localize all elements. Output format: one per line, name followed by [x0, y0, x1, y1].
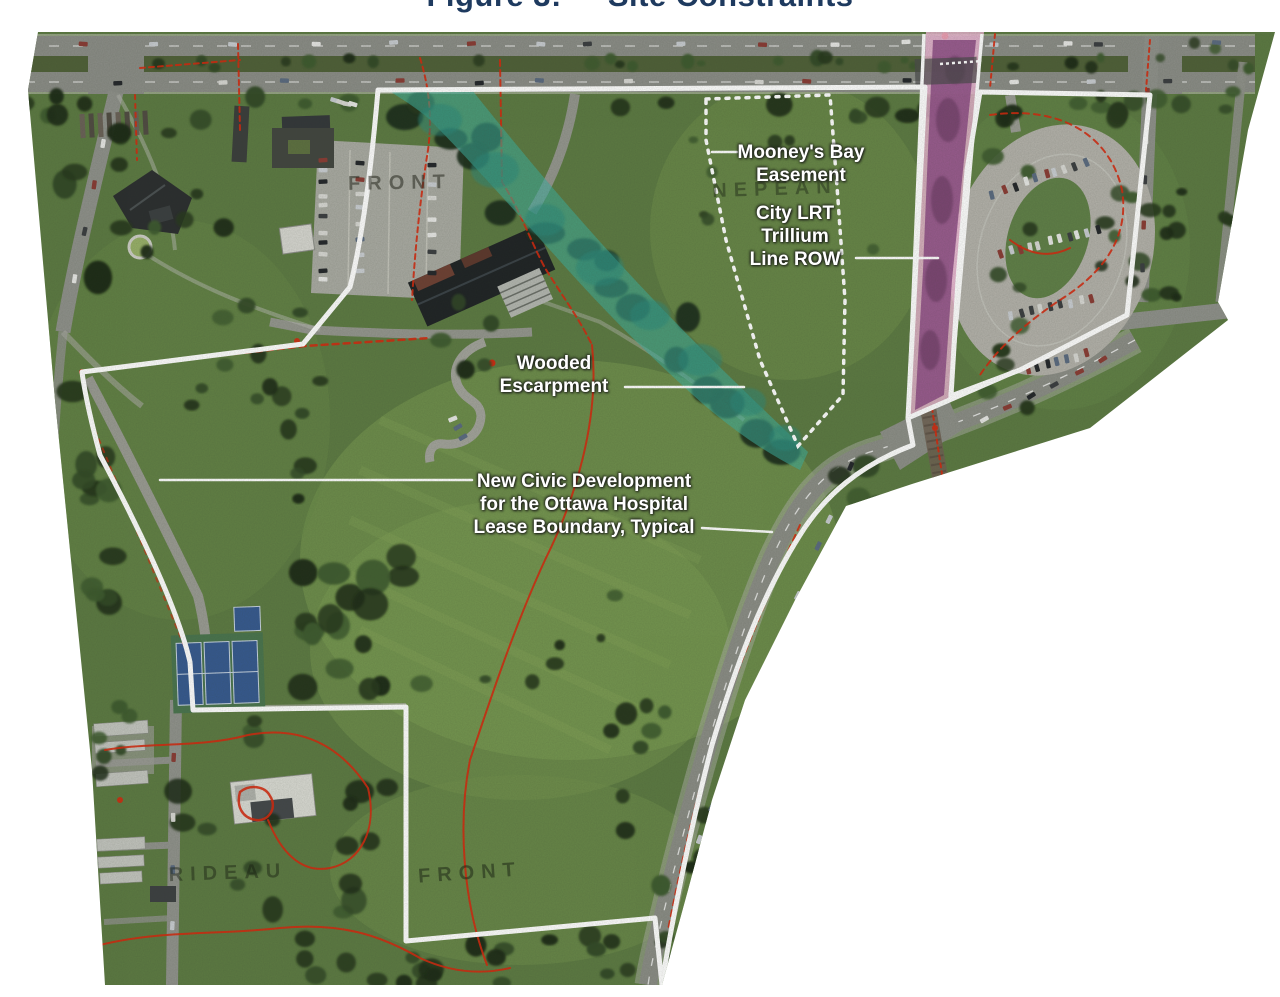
tree-cluster [921, 615, 940, 633]
label-city-lrt-trillium-row: City LRT Trillium Line ROW [750, 202, 841, 271]
tree-cluster [0, 587, 25, 617]
tree-cluster [871, 556, 894, 580]
tree-cluster [52, 586, 71, 604]
label-line: for the Ottawa Hospital [473, 493, 694, 516]
figure-title-bar: Figure 3: Site Constraints [0, 0, 1280, 30]
label-line: Trillium [750, 225, 841, 248]
basemap-label-front-upper: FRONT [348, 171, 452, 196]
tree-cluster [56, 641, 78, 665]
car [725, 761, 732, 771]
tree-cluster [12, 237, 34, 252]
tree-cluster [903, 619, 917, 629]
label-line: Easement [738, 164, 865, 187]
tree-cluster [16, 376, 32, 392]
tree-cluster [862, 560, 874, 572]
tree-cluster [896, 591, 921, 612]
tree-cluster [853, 638, 879, 659]
aerial-map: FRONT NEPEAN FRONT RIDEAU Mooney's Bay E… [0, 0, 1280, 997]
figure-title: Figure 3: Site Constraints [426, 0, 853, 14]
tree-cluster [820, 613, 838, 629]
tree-cluster [871, 701, 895, 722]
tree-cluster [824, 601, 851, 627]
car [761, 674, 769, 684]
label-wooded-escarpment: Wooded Escarpment [500, 352, 609, 398]
figure-number: Figure 3: [426, 0, 561, 14]
tree-cluster [899, 704, 915, 718]
tree-cluster [17, 604, 36, 616]
label-line: Lease Boundary, Typical [473, 516, 694, 539]
tree-cluster [1239, 233, 1251, 248]
label-mooneys-bay-easement: Mooney's Bay Easement [738, 141, 865, 187]
label-line: Line ROW [750, 248, 841, 271]
basemap-label-rideau: RIDEAU [168, 860, 287, 887]
tree-cluster [38, 578, 52, 590]
tree-cluster [1, 491, 28, 519]
tree-cluster [867, 496, 887, 514]
tree-cluster [0, 165, 19, 185]
tree-cluster [862, 747, 879, 760]
label-lease-boundary: New Civic Development for the Ottawa Hos… [473, 470, 694, 539]
label-line: Mooney's Bay [738, 141, 865, 164]
car [777, 634, 785, 644]
tree-cluster [901, 731, 921, 752]
label-line: Escarpment [500, 375, 609, 398]
label-line: Wooded [500, 352, 609, 375]
car [745, 712, 752, 722]
label-line: New Civic Development [473, 470, 694, 493]
tree-cluster [823, 656, 844, 680]
figure-name: Site Constraints [608, 0, 854, 14]
figure-page: FRONT NEPEAN FRONT RIDEAU Mooney's Bay E… [0, 0, 1280, 997]
tree-cluster [0, 322, 30, 345]
label-line: City LRT [750, 202, 841, 225]
tree-cluster [915, 593, 933, 610]
